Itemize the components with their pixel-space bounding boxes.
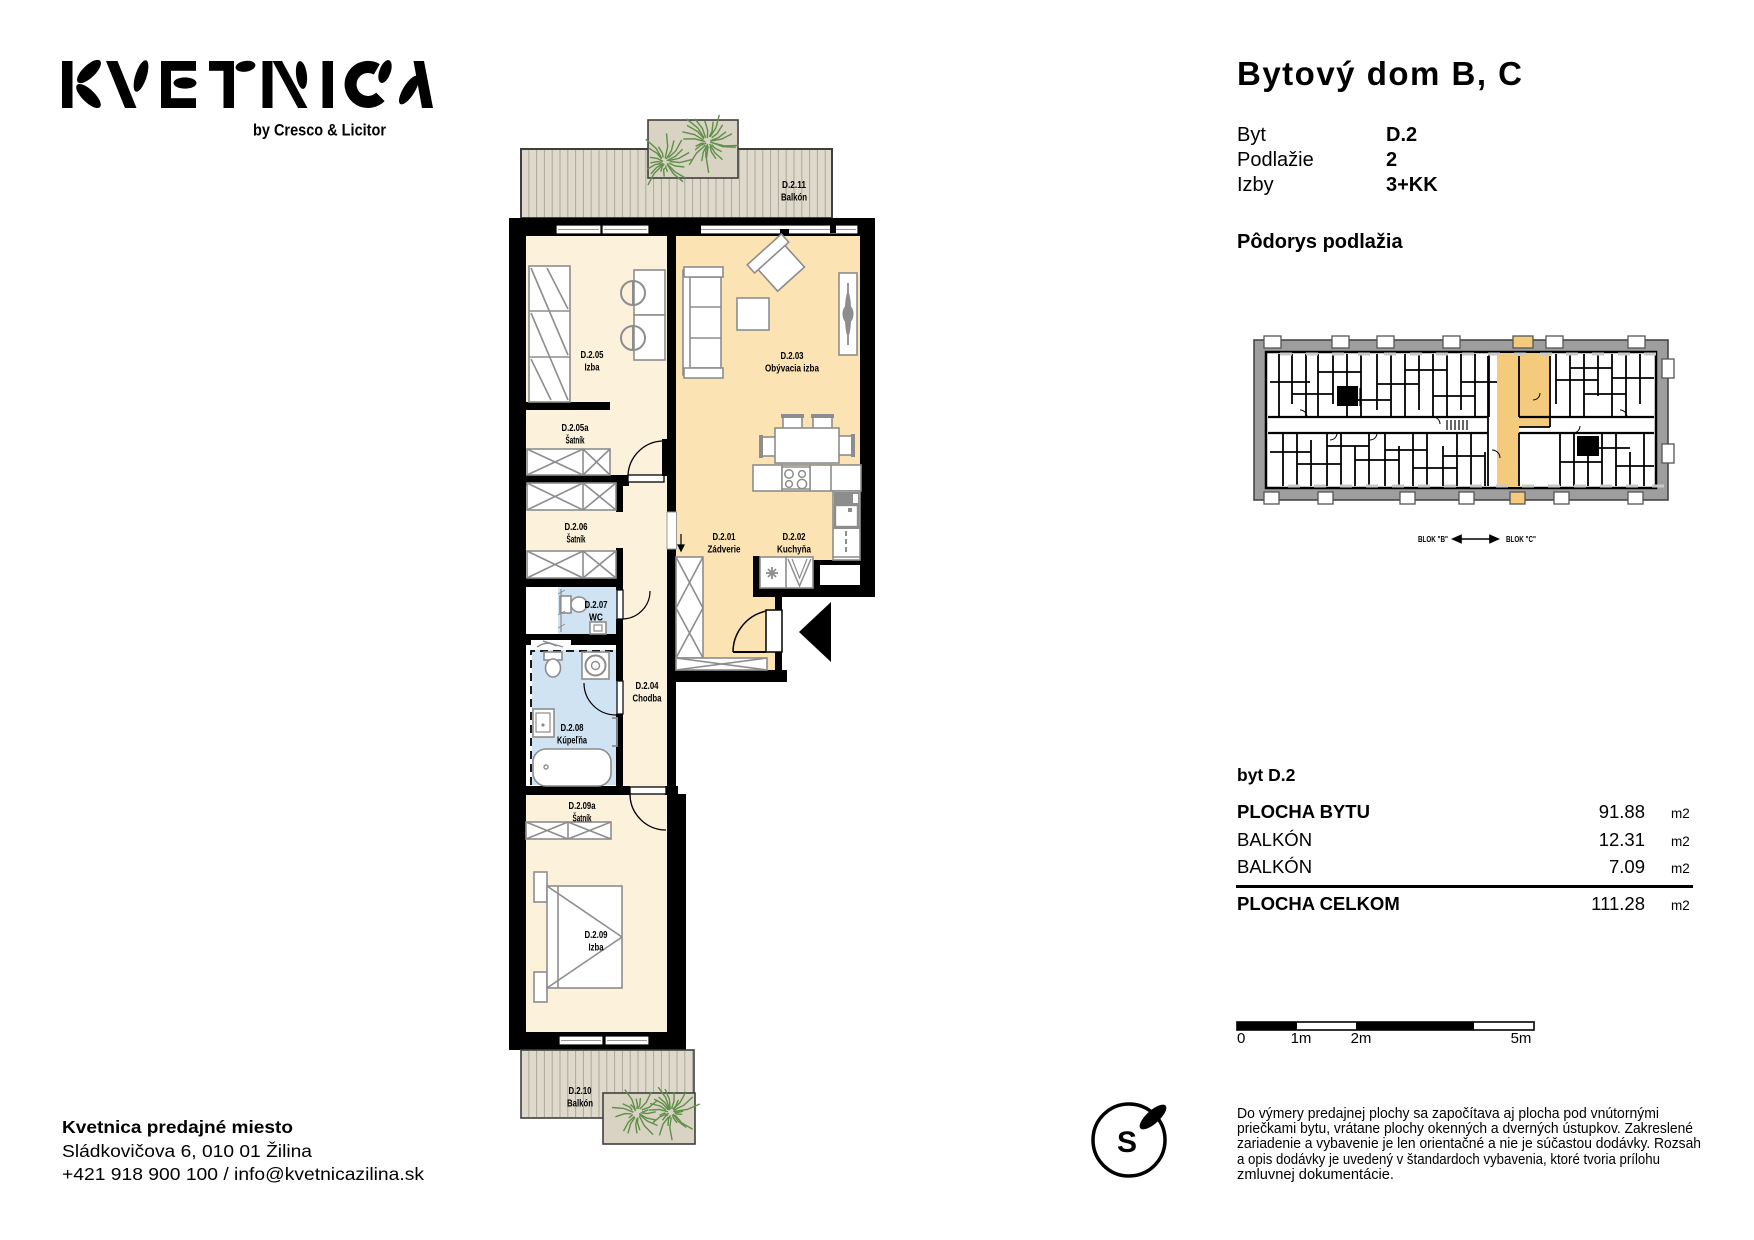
- svg-text:D.2.05: D.2.05: [581, 349, 604, 361]
- svg-text:0: 0: [1237, 1030, 1245, 1047]
- svg-text:zariadenie a vybavenie je len: zariadenie a vybavenie je len orientačné…: [1237, 1136, 1701, 1152]
- svg-text:BALKÓN: BALKÓN: [1237, 856, 1312, 877]
- svg-text:Kvetnica predajné miesto: Kvetnica predajné miesto: [62, 1117, 293, 1137]
- svg-text:Podlažie: Podlažie: [1237, 149, 1314, 171]
- svg-text:Izba: Izba: [585, 362, 600, 374]
- svg-text:D.2.10: D.2.10: [569, 1085, 592, 1097]
- svg-text:Balkón: Balkón: [781, 192, 807, 204]
- svg-text:Pôdorys podlažia: Pôdorys podlažia: [1237, 231, 1403, 253]
- svg-text:111.28: 111.28: [1591, 893, 1645, 914]
- svg-text:D.2.08: D.2.08: [561, 722, 584, 734]
- svg-text:Sládkovičova 6, 010 01 Žilina: Sládkovičova 6, 010 01 Žilina: [62, 1141, 312, 1161]
- svg-text:BLOK "C": BLOK "C": [1506, 534, 1536, 544]
- svg-text:D.2.01: D.2.01: [713, 531, 736, 543]
- svg-text:Balkón: Balkón: [567, 1098, 593, 1110]
- svg-text:Obývacia izba: Obývacia izba: [765, 363, 819, 375]
- svg-text:Chodba: Chodba: [633, 693, 662, 705]
- svg-text:Zádverie: Zádverie: [708, 544, 741, 556]
- svg-text:Šatník: Šatník: [566, 434, 585, 447]
- svg-text:BLOK "B": BLOK "B": [1418, 534, 1448, 544]
- svg-text:2m: 2m: [1351, 1030, 1372, 1047]
- svg-text:m2: m2: [1671, 834, 1690, 849]
- svg-text:2: 2: [1386, 149, 1397, 171]
- svg-text:D.2.07: D.2.07: [585, 599, 608, 611]
- svg-text:D.2.03: D.2.03: [781, 350, 804, 362]
- svg-text:PLOCHA BYTU: PLOCHA BYTU: [1237, 801, 1370, 822]
- svg-text:Do výmery predajnej plochy sa: Do výmery predajnej plochy sa započítava…: [1237, 1106, 1659, 1122]
- svg-text:BALKÓN: BALKÓN: [1237, 829, 1312, 850]
- svg-text:D.2.06: D.2.06: [565, 521, 588, 533]
- svg-text:7.09: 7.09: [1609, 856, 1645, 877]
- svg-text:+421 918 900 100 / info@kvetni: +421 918 900 100 / info@kvetnicazilina.s…: [62, 1164, 424, 1184]
- svg-text:by Cresco & Licitor: by Cresco & Licitor: [253, 121, 386, 140]
- svg-text:PLOCHA CELKOM: PLOCHA CELKOM: [1237, 893, 1400, 914]
- svg-text:D.2.09: D.2.09: [585, 929, 608, 941]
- svg-text:m2: m2: [1671, 861, 1690, 876]
- svg-text:Izba: Izba: [589, 942, 604, 954]
- svg-text:3+KK: 3+KK: [1386, 174, 1438, 196]
- svg-text:a opis dodávky je uvedený v št: a opis dodávky je uvedený v štandardoch …: [1237, 1152, 1660, 1168]
- svg-text:91.88: 91.88: [1599, 801, 1645, 822]
- svg-text:m2: m2: [1671, 898, 1690, 913]
- svg-text:D.2.05a: D.2.05a: [562, 422, 589, 434]
- svg-text:D.2.11: D.2.11: [782, 179, 806, 191]
- svg-text:Šatník: Šatník: [573, 812, 592, 825]
- svg-text:S: S: [1117, 1126, 1137, 1159]
- svg-text:D.2.02: D.2.02: [783, 531, 806, 543]
- svg-text:Kuchyňa: Kuchyňa: [777, 544, 811, 556]
- svg-text:12.31: 12.31: [1599, 829, 1645, 850]
- svg-text:m2: m2: [1671, 806, 1690, 821]
- svg-text:Bytový dom B, C: Bytový dom B, C: [1237, 55, 1522, 92]
- svg-text:zmluvnej dokumentácie.: zmluvnej dokumentácie.: [1237, 1167, 1394, 1183]
- svg-text:D.2.09a: D.2.09a: [569, 800, 596, 812]
- svg-text:Šatník: Šatník: [567, 533, 586, 546]
- svg-text:5m: 5m: [1511, 1030, 1532, 1047]
- svg-text:Izby: Izby: [1237, 174, 1274, 196]
- svg-text:1m: 1m: [1291, 1030, 1312, 1047]
- svg-text:Byt: Byt: [1237, 124, 1266, 146]
- svg-text:D.2.04: D.2.04: [636, 680, 659, 692]
- svg-text:Kúpeľňa: Kúpeľňa: [557, 735, 587, 747]
- svg-text:D.2: D.2: [1386, 124, 1417, 146]
- svg-text:priečkami bytu, vrátane plochy: priečkami bytu, vrátane plochy okenných …: [1237, 1121, 1693, 1137]
- svg-text:WC: WC: [589, 612, 603, 624]
- svg-text:byt D.2: byt D.2: [1237, 765, 1296, 785]
